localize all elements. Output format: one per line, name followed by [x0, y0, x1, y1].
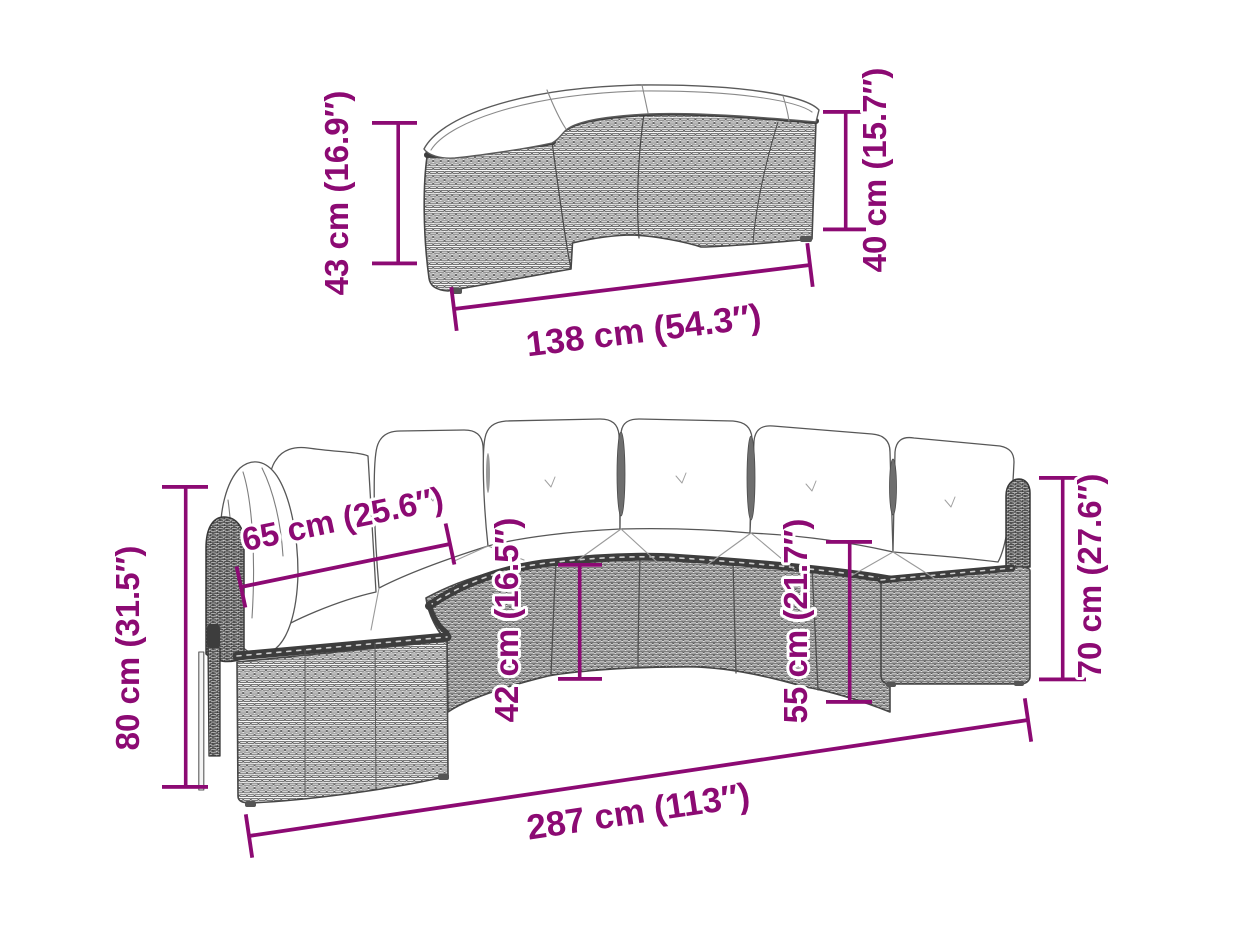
svg-text:80 cm (31.5″): 80 cm (31.5″) [109, 546, 146, 751]
svg-text:40 cm (15.7″): 40 cm (15.7″) [856, 68, 893, 273]
svg-text:42 cm (16.5″): 42 cm (16.5″) [488, 518, 525, 723]
svg-text:70 cm (27.6″): 70 cm (27.6″) [1071, 474, 1108, 679]
svg-text:43 cm (16.9″): 43 cm (16.9″) [318, 91, 355, 296]
svg-text:55 cm (21.7″): 55 cm (21.7″) [777, 519, 814, 724]
